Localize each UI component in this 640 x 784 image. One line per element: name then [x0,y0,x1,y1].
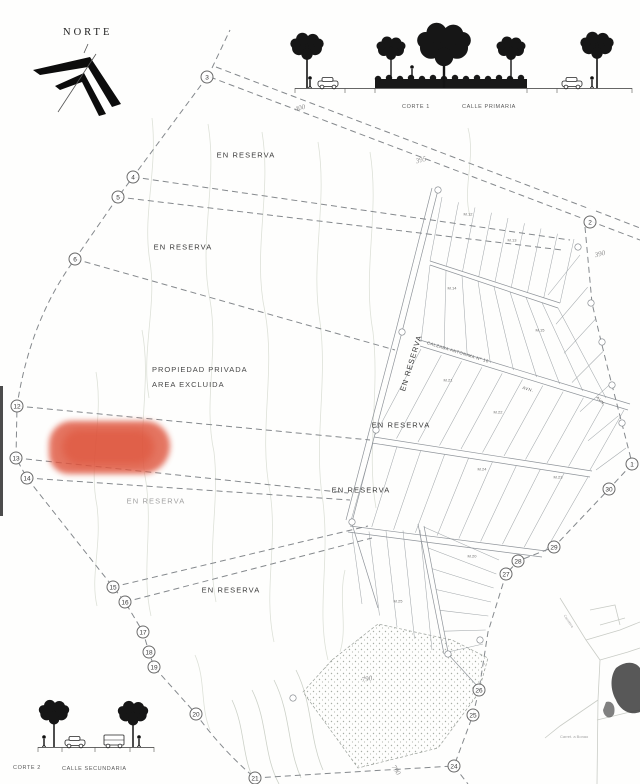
private-area-label: PROPIEDAD PRIVADA AREA EXCLUIDA [152,362,248,392]
boundary-marker: 16 [119,596,132,609]
internal-streets [346,188,630,688]
reserve-label: EN RESERVA [332,486,391,495]
north-arrow-icon [33,44,121,116]
boundary-marker: 25 [467,709,480,722]
scan-edge-artifact [0,386,3,516]
location-inset [545,598,640,784]
boundary-marker: 13 [10,452,23,465]
plat-linework [0,0,640,784]
boundary-marker: 24 [448,760,461,773]
boundary-marker: 17 [137,626,150,639]
boundary-marker: 1 [626,458,639,471]
parcel-block-label: M.23 [554,475,563,480]
boundary-marker: 14 [21,472,34,485]
tree-icon [290,33,323,60]
inset-built-area [612,663,640,714]
reserve-label: EN RESERVA [372,421,431,430]
parcel-block-label: M.20 [468,554,477,559]
car-icon [562,78,582,89]
reserve-label: EN RESERVA [154,243,213,252]
boundary-marker: 3 [201,71,214,84]
parcel-block-label: M.12 [464,212,473,217]
car-icon [318,78,338,89]
calle-secundaria-label: CALLE SECUNDARIA [62,766,127,772]
reserve-label: EN RESERVA [217,151,276,160]
red-highlight-core [62,429,154,465]
corte1-label: CORTE 1 [402,104,430,110]
person-icon [590,76,594,88]
boundary-marker: 18 [143,646,156,659]
north-label: NORTE [63,27,112,38]
parcel-block-label: M.24 [478,467,487,472]
car-icon [65,737,85,748]
scanned-plat-map: NORTE CORTE 1 CALLE PRIMARIA CORTE 2 CAL… [0,0,640,784]
boundary-marker: 29 [548,541,561,554]
tree-icon [580,32,613,59]
person-icon [137,735,141,747]
boundary-marker: 20 [190,708,203,721]
boundary-marker: 15 [107,581,120,594]
street-section-secondary [38,700,154,752]
tree-icon [377,37,406,61]
inset-caption: Carret. a Bonao [560,734,588,739]
private-area-line1: PROPIEDAD PRIVADA [152,362,248,377]
boundary-marker: 6 [69,253,82,266]
person-icon [42,735,46,747]
parcel-block-label: M.14 [448,286,457,291]
boundary-marker: 4 [127,171,140,184]
tree-icon [118,701,148,726]
boundary-marker: 2 [584,216,597,229]
calle-primaria-label: CALLE PRIMARIA [462,104,516,110]
boundary-marker: 28 [512,555,525,568]
boundary-marker: 27 [500,568,513,581]
boundary-marker: 12 [11,400,24,413]
reserve-label: EN RESERVA [202,586,261,595]
boundary-marker: 21 [249,772,262,784]
boundary-marker: 19 [148,661,161,674]
person-icon [308,76,312,88]
boundary-marker: 30 [603,483,616,496]
parcel-block-label: M.25 [394,599,403,604]
parcel-block-label: M.13 [508,238,517,243]
parcel-block-label: M.22 [494,410,503,415]
bus-icon [104,735,124,748]
stippled-area [303,624,488,768]
tree-icon [417,23,471,66]
corte2-label: CORTE 2 [13,765,41,771]
parcel-block-label: M.21 [444,378,453,383]
private-area-line2: AREA EXCLUIDA [152,377,248,392]
reserve-label: EN RESERVA [127,497,186,506]
tree-icon [39,700,69,725]
street-section-primary [290,23,632,93]
corner-markers [290,187,625,701]
boundary-marker: 26 [473,684,486,697]
tree-icon [497,37,526,61]
boundary-marker: 5 [112,191,125,204]
parcel-block-label: M.15 [536,328,545,333]
